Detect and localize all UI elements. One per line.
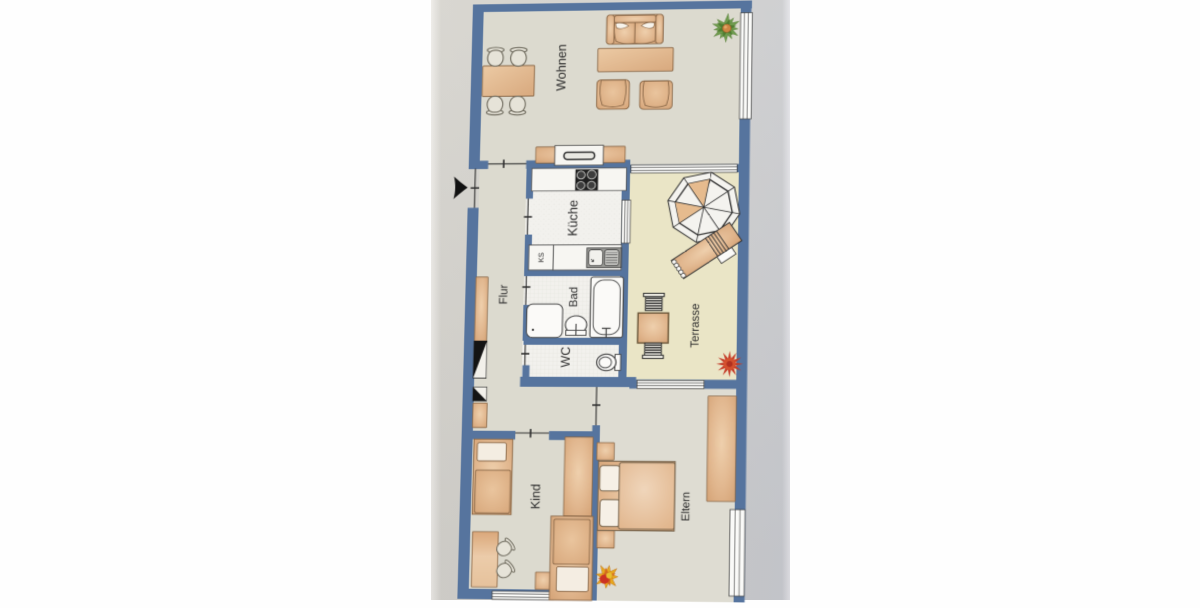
svg-text:Küche: Küche: [565, 200, 580, 236]
svg-text:Wohnen: Wohnen: [554, 44, 570, 91]
svg-text:WC: WC: [558, 346, 573, 367]
svg-text:Eltern: Eltern: [679, 492, 692, 522]
svg-text:KS: KS: [536, 252, 546, 262]
svg-text:Kind: Kind: [528, 484, 543, 509]
svg-text:Bad: Bad: [568, 287, 581, 307]
svg-text:Terrasse: Terrasse: [689, 303, 702, 347]
svg-text:Flur: Flur: [498, 284, 511, 304]
